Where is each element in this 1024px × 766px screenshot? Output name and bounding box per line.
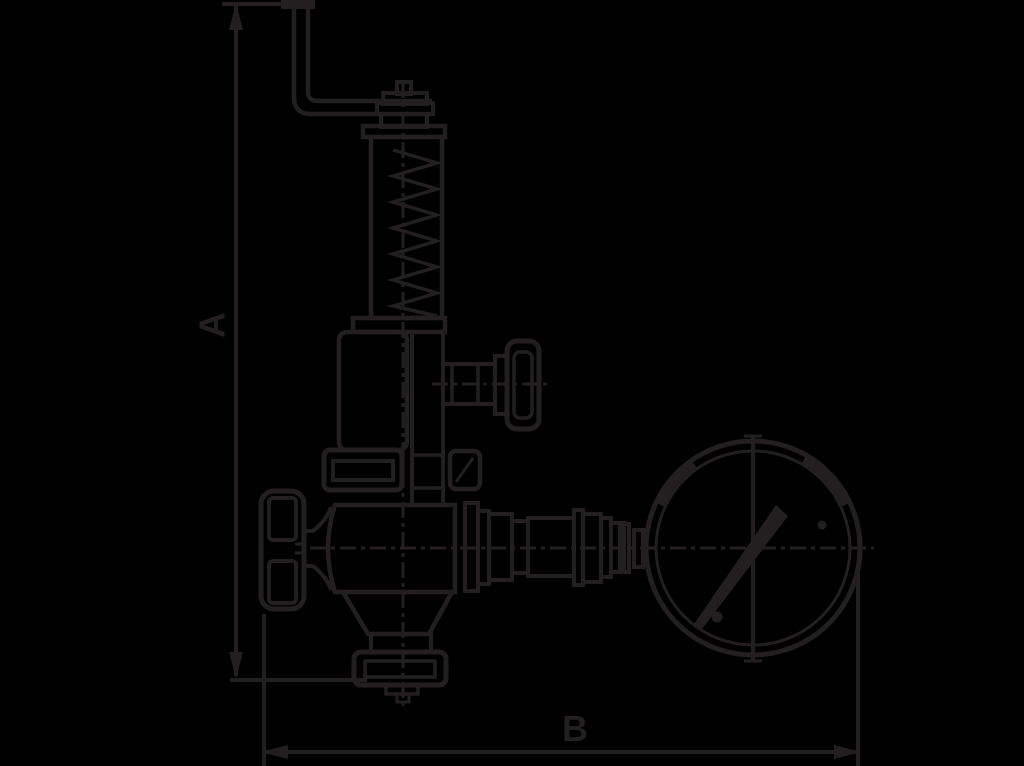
- arrow-down-icon: [229, 652, 243, 679]
- dial-screw-dot: [712, 612, 723, 623]
- outlet-neck: [371, 634, 431, 652]
- valve-body: [328, 505, 455, 702]
- lever-outer-edge: [294, 8, 432, 114]
- dimension-a-label: A: [192, 312, 233, 338]
- gauge-inlet-bar: [634, 530, 643, 567]
- spring-coils: [393, 150, 437, 316]
- gauge-needle: [694, 505, 788, 629]
- body-taper: [343, 592, 452, 634]
- bottom-flange: [354, 652, 446, 685]
- dial-screw-dot: [818, 521, 827, 530]
- lower-housing-tube: [339, 332, 407, 450]
- lever-end-cap: [281, 0, 315, 9]
- bottom-flange-face: [365, 661, 435, 677]
- valve-dimension-drawing: A B: [0, 0, 1024, 766]
- bent-lever: [281, 0, 432, 114]
- nut-chamfer-line: [456, 458, 473, 482]
- dimension-b-label: B: [562, 708, 588, 749]
- stem-cone-top: [304, 507, 331, 531]
- wheel-spoke-bottom: [269, 561, 296, 603]
- flange-outline: [324, 450, 402, 490]
- bonnet-flange: [324, 450, 480, 490]
- wheel-spoke-top: [269, 498, 296, 540]
- arrow-up-icon: [229, 3, 243, 30]
- stem-cone-bottom: [304, 566, 331, 590]
- adjusting-cap: [377, 82, 433, 127]
- left-handwheel: [261, 491, 331, 609]
- lever-inner-edge: [308, 8, 432, 101]
- drawing-canvas: A B: [0, 0, 1024, 766]
- flange-face: [333, 461, 393, 480]
- dimension-line-b: B: [261, 566, 861, 766]
